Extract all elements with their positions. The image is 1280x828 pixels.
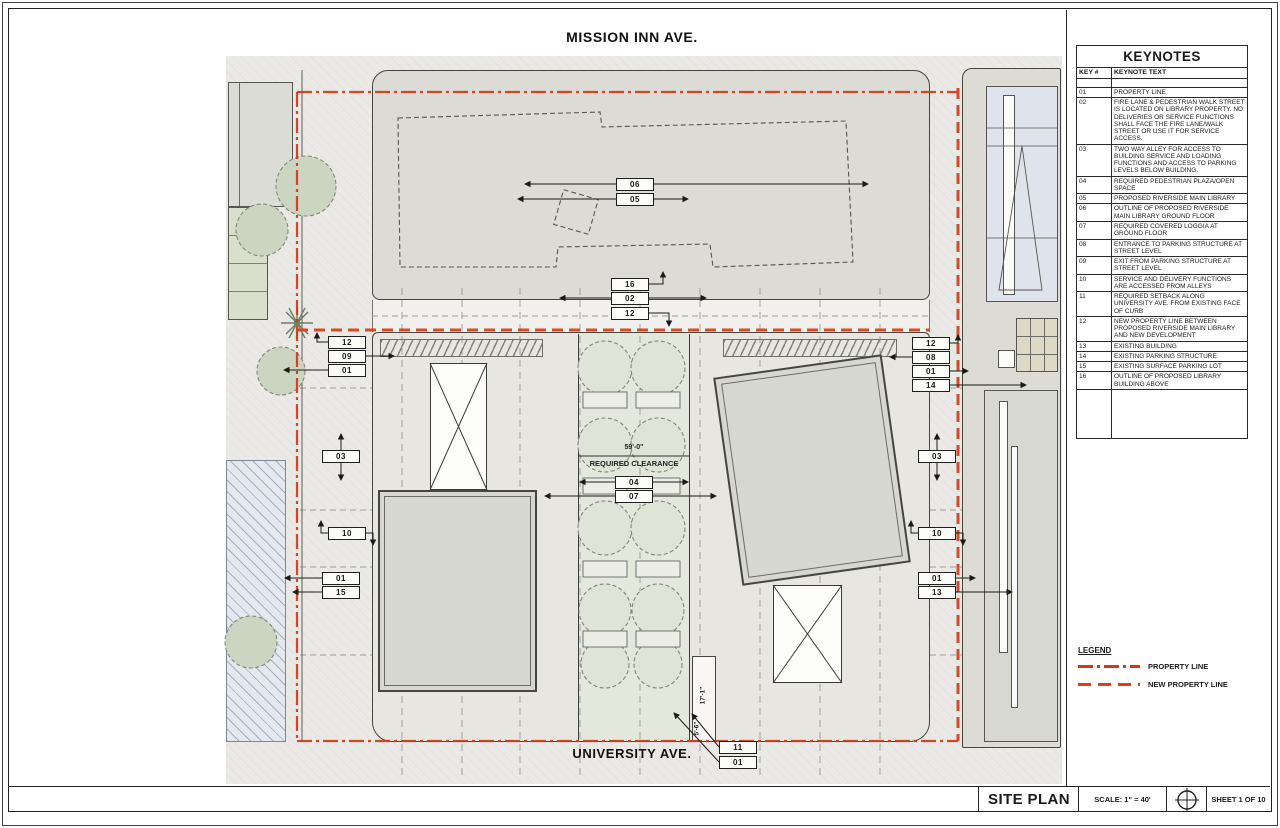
keynote-row-15: 15EXISTING SURFACE PARKING LOT bbox=[1077, 362, 1248, 372]
keynote-row-09: 09EXIT FROM PARKING STRUCTURE AT STREET … bbox=[1077, 257, 1248, 275]
setback-dim-17: 17'-1" bbox=[699, 687, 706, 705]
legend: LEGEND PROPERTY LINENEW PROPERTY LINE bbox=[1078, 646, 1248, 698]
existing-building-west bbox=[228, 82, 293, 207]
existing-building-east-small bbox=[998, 350, 1015, 368]
existing-parking-structure bbox=[986, 86, 1058, 302]
ramp-hatch-west bbox=[380, 339, 543, 357]
proposed-library-east-wing bbox=[713, 354, 911, 586]
keynote-row-03: 03TWO WAY ALLEY FOR ACCESS TO BUILDING S… bbox=[1077, 144, 1248, 176]
keynote-row-08: 08ENTRANCE TO PARKING STRUCTURE AT STREE… bbox=[1077, 239, 1248, 257]
keynotes-col-key: KEY # bbox=[1077, 68, 1112, 79]
existing-building-west-2 bbox=[228, 207, 268, 320]
keynotes-title: KEYNOTES bbox=[1077, 46, 1248, 68]
keynote-row-10: 10SERVICE AND DELIVERY FUNCTIONS ARE ACC… bbox=[1077, 274, 1248, 292]
title-block: SITE PLAN SCALE: 1" = 40' SHEET 1 OF 10 bbox=[8, 786, 1270, 812]
legend-item-label: PROPERTY LINE bbox=[1148, 662, 1208, 671]
library-core-east bbox=[773, 585, 842, 683]
drawing-sheet: { "page": { "streets": { "top": "MISSION… bbox=[0, 0, 1280, 828]
keynote-row-14: 14EXISTING PARKING STRUCTURE bbox=[1077, 351, 1248, 361]
scale-label: SCALE: 1" = 40' bbox=[1078, 787, 1166, 812]
existing-building-east-grid bbox=[1016, 318, 1058, 372]
fire-lane-walk-street bbox=[372, 300, 930, 332]
proposed-library-west-wing bbox=[378, 490, 537, 692]
existing-surface-parking-lot bbox=[226, 460, 286, 742]
keynote-row-11: 11REQUIRED SETBACK ALONG UNIVERSITY AVE.… bbox=[1077, 292, 1248, 317]
ramp-hatch-east bbox=[723, 339, 897, 357]
site-plan-title: SITE PLAN bbox=[978, 787, 1078, 812]
mission-inn-ave-label: MISSION INN AVE. bbox=[566, 29, 698, 45]
legend-item-label: NEW PROPERTY LINE bbox=[1148, 680, 1228, 689]
new-property-line-swatch bbox=[1078, 683, 1140, 687]
keynotes-table: KEYNOTES KEY # KEYNOTE TEXT 01PROPERTY L… bbox=[1076, 45, 1248, 439]
keynote-row-06: 06OUTLINE OF PROPOSED RIVERSIDE MAIN LIB… bbox=[1077, 204, 1248, 222]
keynote-row-04: 04REQUIRED PEDESTRIAN PLAZA/OPEN SPACE bbox=[1077, 176, 1248, 194]
keynote-row-16: 16OUTLINE OF PROPOSED LIBRARY BUILDING A… bbox=[1077, 372, 1248, 390]
notes-column-divider bbox=[1066, 10, 1067, 786]
keynote-row-01: 01PROPERTY LINE bbox=[1077, 87, 1248, 97]
keynote-row-02: 02FIRE LANE & PEDESTRIAN WALK STREET IS … bbox=[1077, 97, 1248, 144]
keynotes-col-text: KEYNOTE TEXT bbox=[1112, 68, 1248, 79]
north-arrow-icon bbox=[1166, 787, 1206, 812]
clearance-text-label: REQUIRED CLEARANCE bbox=[590, 459, 679, 468]
pedestrian-plaza bbox=[578, 334, 690, 740]
clearance-dim-label: 59'-0" bbox=[625, 444, 644, 451]
library-core-west bbox=[430, 363, 487, 490]
university-ave-label: UNIVERSITY AVE. bbox=[572, 746, 691, 761]
sheet-number: SHEET 1 OF 10 bbox=[1206, 787, 1270, 812]
legend-title: LEGEND bbox=[1078, 646, 1248, 655]
keynote-row-13: 13EXISTING BUILDING bbox=[1077, 341, 1248, 351]
existing-building-east bbox=[984, 390, 1058, 742]
legend-item: NEW PROPERTY LINE bbox=[1078, 680, 1248, 689]
keynote-row-05: 05PROPOSED RIVERSIDE MAIN LIBRARY bbox=[1077, 194, 1248, 204]
property-line-swatch bbox=[1078, 665, 1140, 668]
legend-item: PROPERTY LINE bbox=[1078, 662, 1248, 671]
setback-dim-5: 5'-6" bbox=[694, 721, 701, 735]
keynote-row-07: 07REQUIRED COVERED LOGGIA AT GROUND FLOO… bbox=[1077, 221, 1248, 239]
keynote-row-12: 12NEW PROPERTY LINE BETWEEN PROPOSED RIV… bbox=[1077, 316, 1248, 341]
upper-block-parcel bbox=[372, 70, 930, 300]
